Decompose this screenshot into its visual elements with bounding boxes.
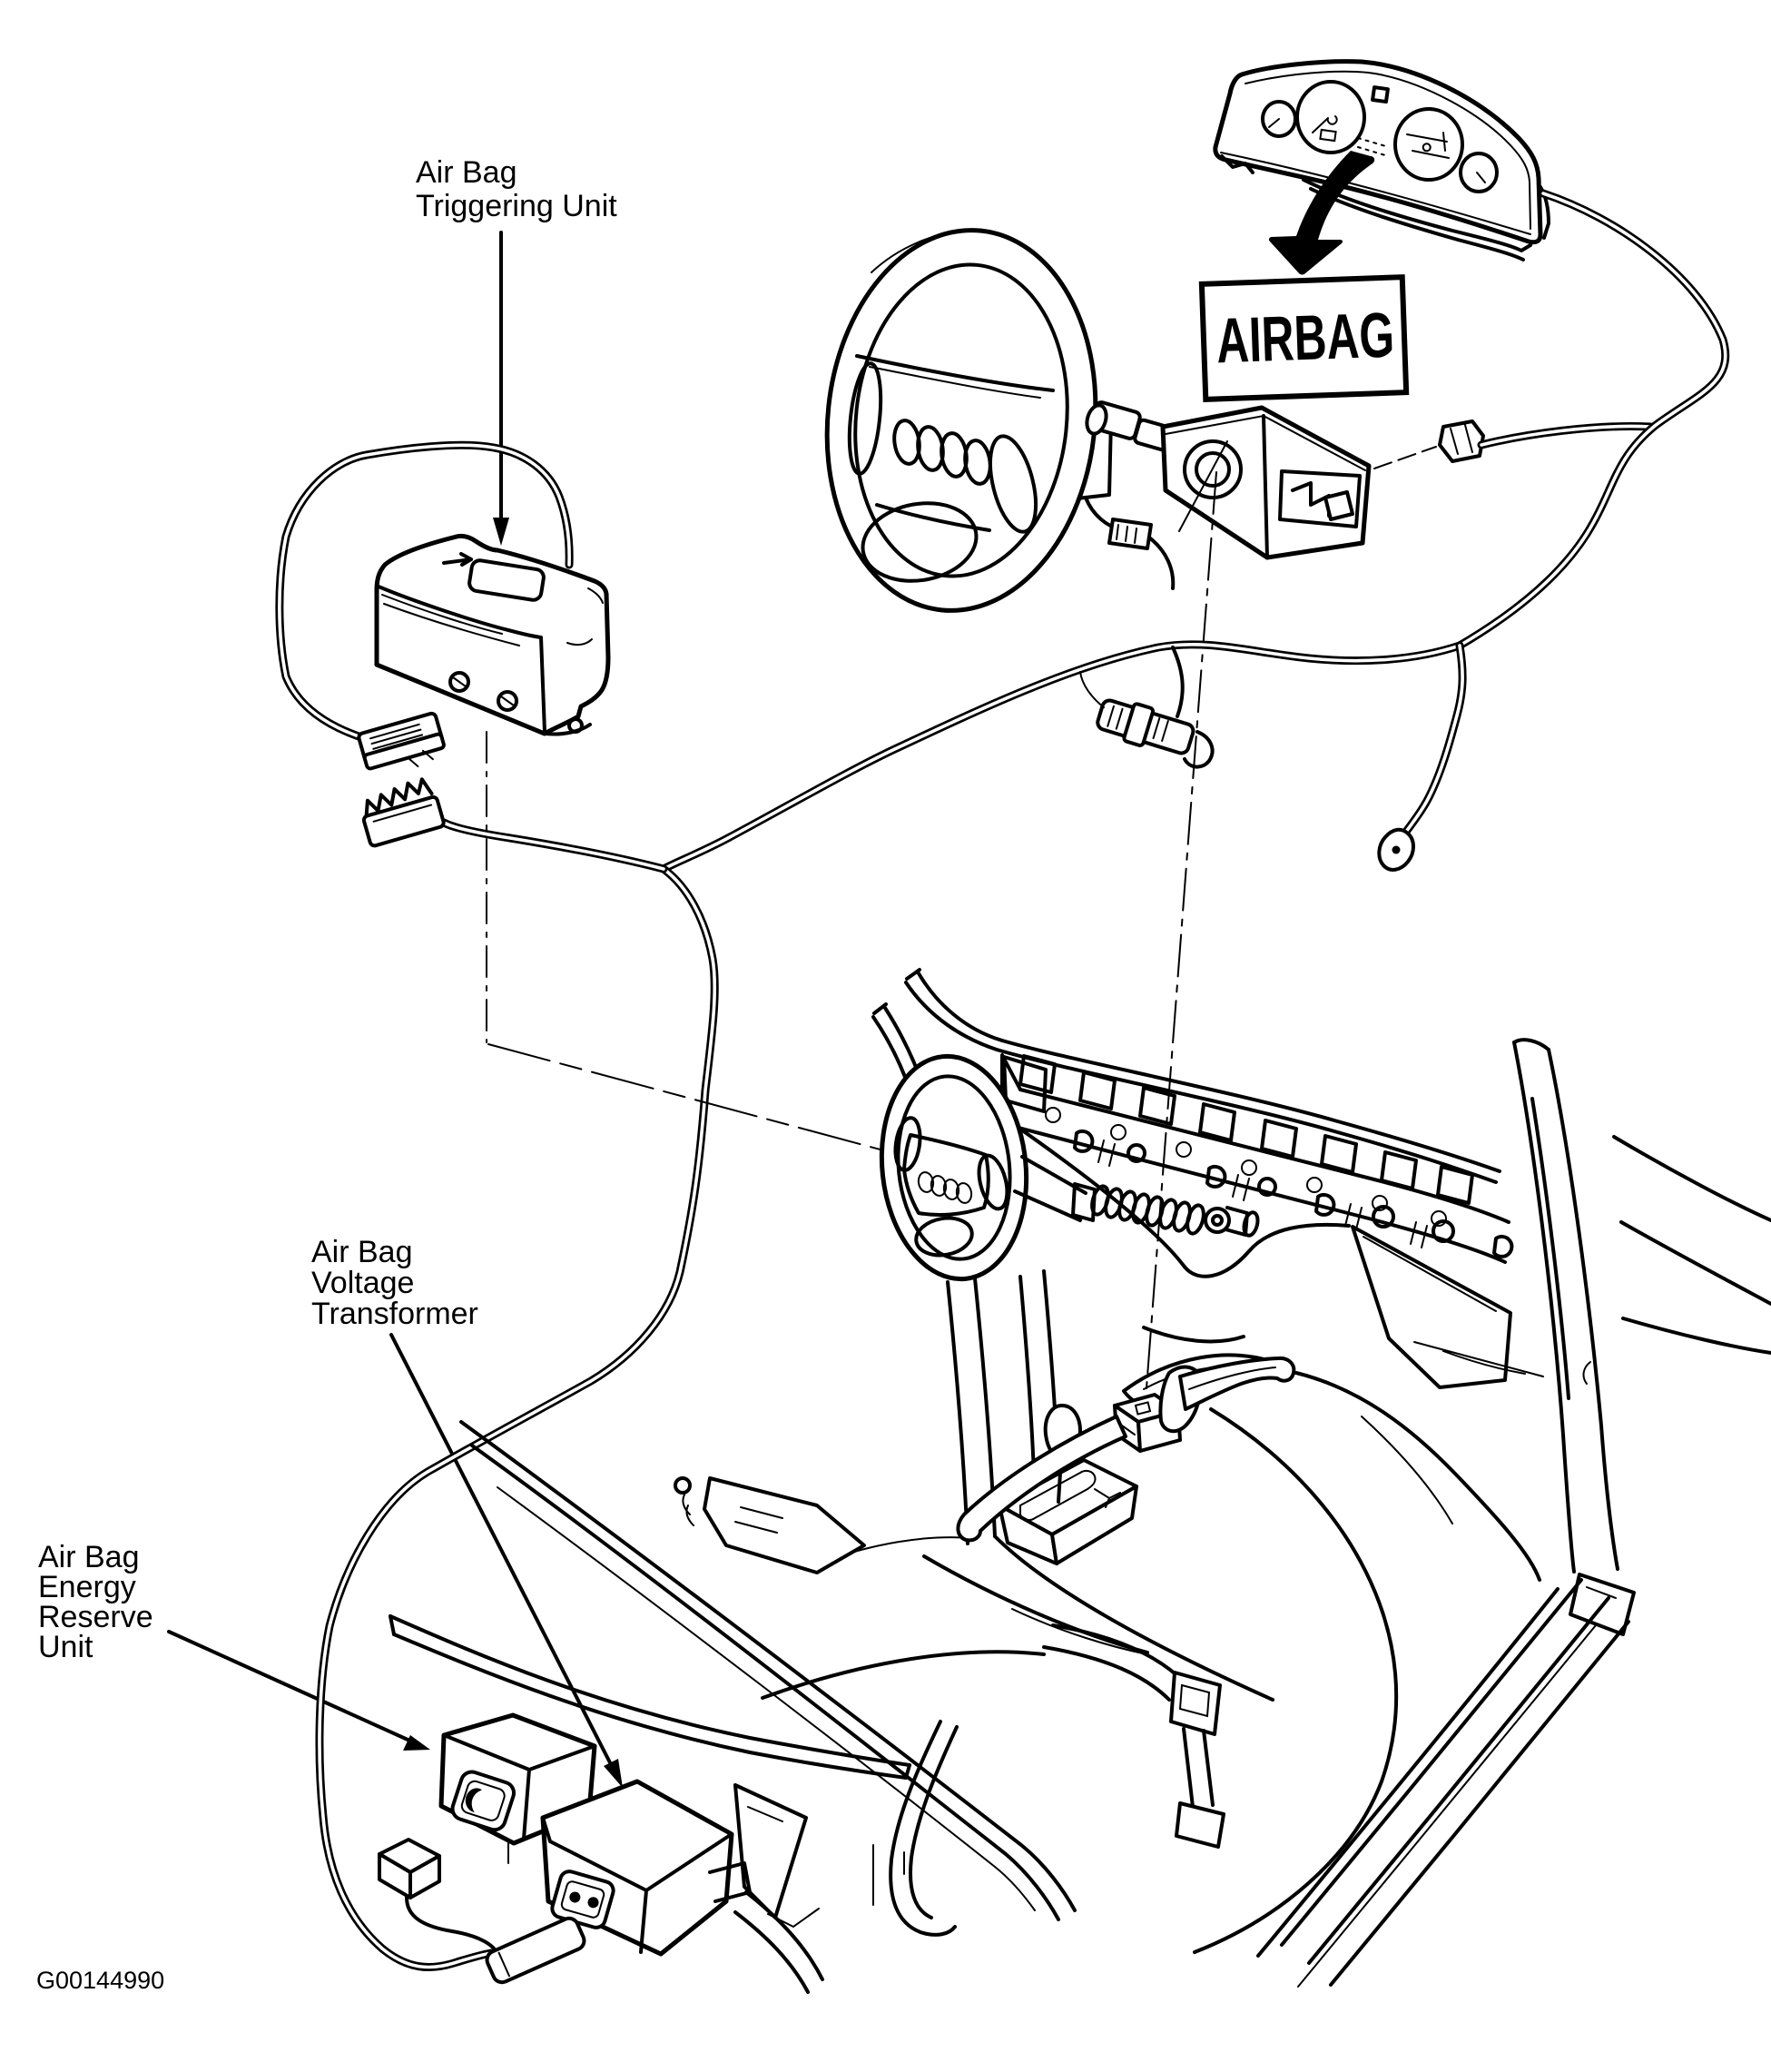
svg-text:Triggering Unit: Triggering Unit: [416, 189, 617, 223]
svg-text:Transformer: Transformer: [311, 1297, 478, 1331]
svg-text:Unit: Unit: [38, 1630, 93, 1664]
svg-text:Air Bag: Air Bag: [416, 155, 517, 190]
svg-text:G00144990: G00144990: [36, 1967, 164, 1994]
svg-text:Voltage: Voltage: [311, 1266, 414, 1300]
svg-text:AIRBAG: AIRBAG: [1215, 300, 1396, 377]
svg-text:Air Bag: Air Bag: [311, 1235, 413, 1269]
